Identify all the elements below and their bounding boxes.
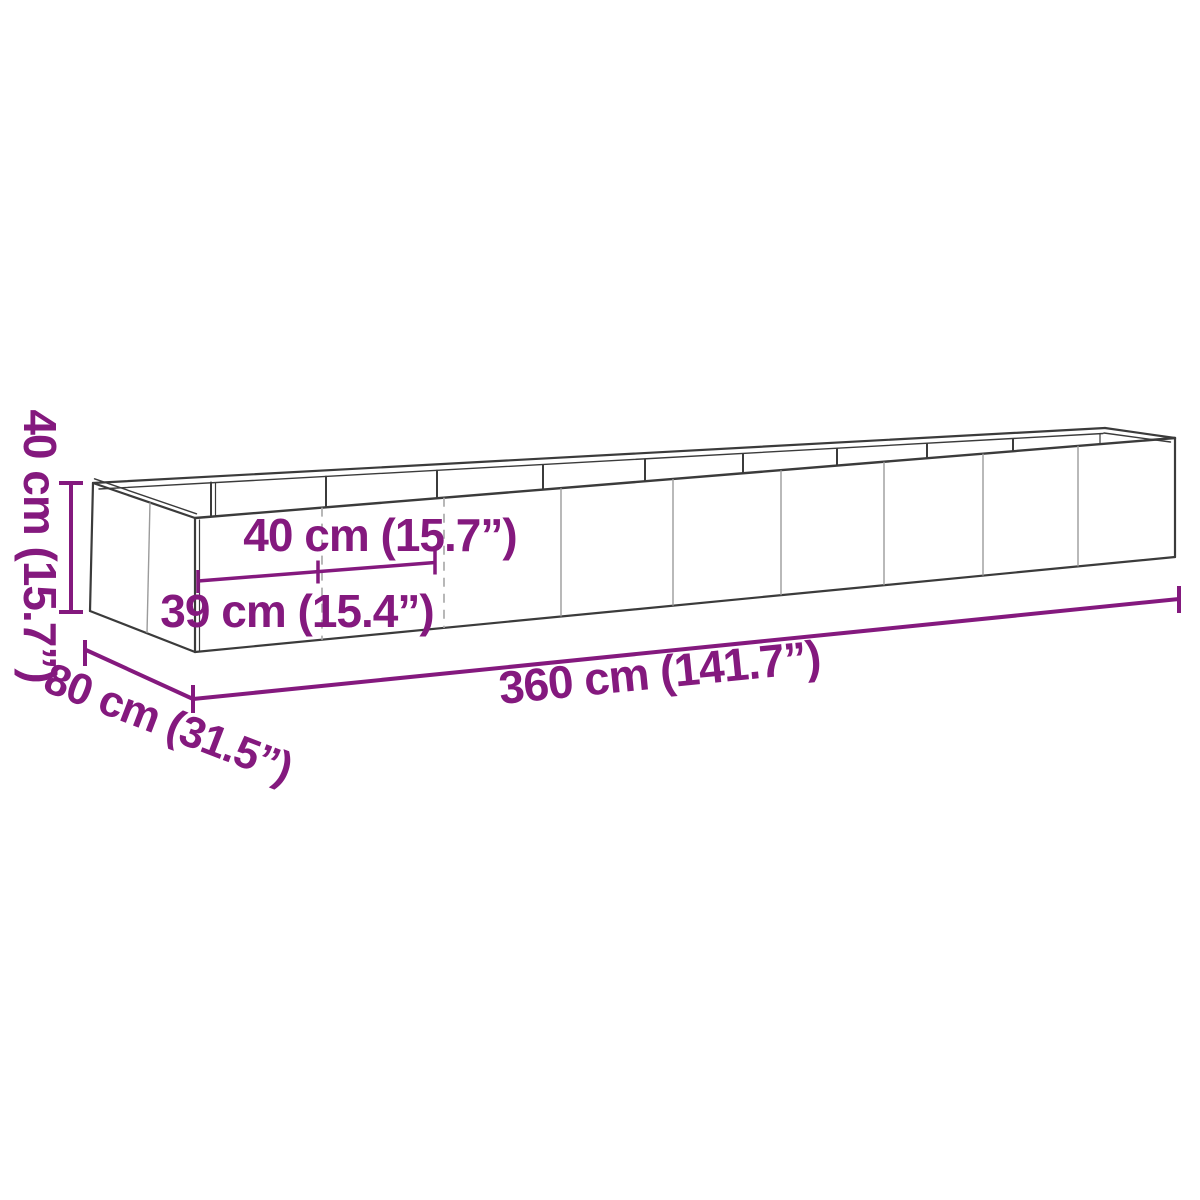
depth-dimension-label: 80 cm (31.5”) (38, 654, 299, 793)
back-rim-inner-edge (99, 434, 1103, 490)
left-wall-seam (147, 503, 150, 634)
right-rim-outer-edge (1105, 428, 1175, 438)
length-dimension-label: 360 cm (141.7”) (496, 630, 822, 714)
panel-width-label: 40 cm (15.7”) (243, 509, 516, 561)
height-dimension-label: 40 cm (15.7”) (14, 409, 66, 682)
product-dimension-diagram: 40 cm (15.7”) 80 cm (31.5”) 360 cm (141.… (0, 0, 1200, 1200)
end-panel-width-label: 39 cm (15.4”) (160, 585, 433, 637)
diagram-canvas: 40 cm (15.7”) 80 cm (31.5”) 360 cm (141.… (0, 0, 1200, 1200)
left-rim-outer-edge (93, 483, 195, 518)
back-left-corner-edge (90, 483, 93, 611)
dimension-labels: 40 cm (15.7”) 80 cm (31.5”) 360 cm (141.… (14, 409, 822, 793)
